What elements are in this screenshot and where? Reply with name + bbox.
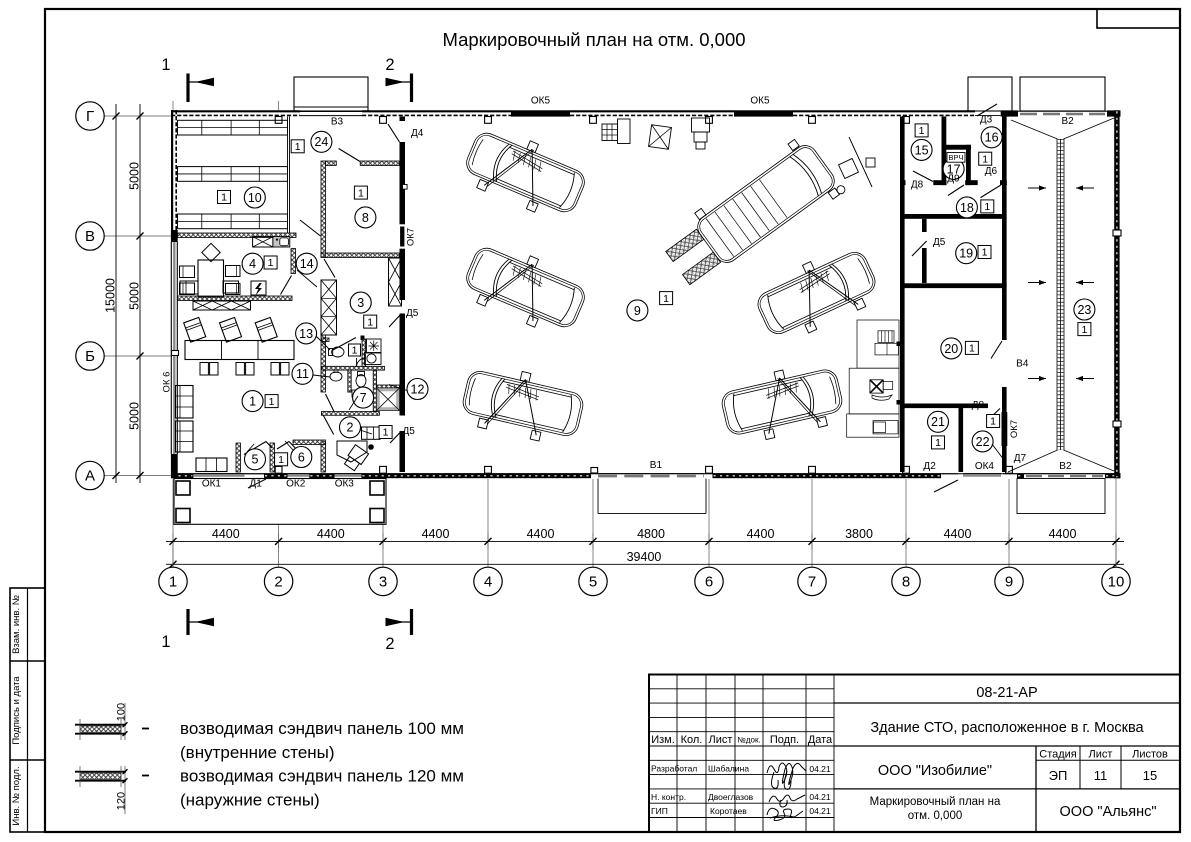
svg-text:100: 100: [116, 703, 128, 721]
svg-text:Г: Г: [86, 108, 94, 125]
svg-text:08-21-АР: 08-21-АР: [976, 685, 1037, 701]
svg-text:ВРЧ: ВРЧ: [948, 153, 963, 162]
svg-text:ОК2: ОК2: [286, 479, 306, 490]
svg-text:Д8: Д8: [911, 180, 924, 191]
svg-text:Д3: Д3: [980, 115, 993, 126]
svg-text:Д8: Д8: [972, 400, 985, 411]
svg-text:Подп.: Подп.: [770, 734, 799, 746]
svg-text:10: 10: [248, 191, 262, 205]
svg-text:5000: 5000: [128, 282, 142, 310]
svg-text:(наружние стены): (наружние стены): [180, 791, 320, 810]
svg-text:1: 1: [269, 396, 275, 408]
svg-text:ОК4: ОК4: [975, 461, 995, 472]
svg-text:2: 2: [385, 635, 394, 653]
svg-text:16: 16: [985, 131, 999, 145]
svg-text:Здание СТО, расположенное в г.: Здание СТО, расположенное в г. Москва: [870, 720, 1144, 736]
svg-text:В4: В4: [1016, 359, 1029, 370]
svg-text:1: 1: [278, 454, 284, 466]
svg-text:(внутренние стены): (внутренние стены): [180, 743, 335, 762]
svg-text:04.21: 04.21: [809, 792, 831, 802]
svg-text:1: 1: [221, 192, 227, 204]
svg-text:Д9: Д9: [947, 174, 960, 185]
svg-text:5: 5: [252, 453, 259, 467]
svg-text:Д4: Д4: [411, 128, 424, 139]
svg-text:9: 9: [634, 304, 641, 318]
svg-text:Д6: Д6: [985, 166, 998, 177]
svg-text:В1: В1: [650, 460, 663, 471]
svg-text:20: 20: [944, 342, 958, 356]
svg-text:Д5: Д5: [933, 237, 946, 248]
svg-text:Листов: Листов: [1132, 749, 1168, 761]
svg-text:1: 1: [249, 394, 256, 408]
svg-text:Разработал: Разработал: [651, 764, 697, 774]
svg-text:Н. контр.: Н. контр.: [651, 792, 686, 802]
svg-text:4: 4: [484, 574, 492, 591]
svg-text:4400: 4400: [317, 527, 345, 541]
svg-text:В: В: [85, 228, 95, 245]
svg-text:2: 2: [385, 56, 394, 74]
svg-text:ОК3: ОК3: [335, 479, 355, 490]
svg-text:ОК5: ОК5: [750, 96, 770, 107]
svg-text:3800: 3800: [845, 527, 873, 541]
svg-text:15: 15: [1143, 768, 1157, 783]
svg-text:1: 1: [367, 316, 373, 328]
svg-text:1: 1: [919, 125, 925, 137]
svg-text:Взам. инв. №: Взам. инв. №: [11, 595, 22, 654]
svg-text:3: 3: [379, 574, 387, 591]
svg-text:В2: В2: [1061, 116, 1074, 127]
svg-text:15: 15: [915, 143, 929, 157]
svg-text:1: 1: [969, 343, 975, 355]
svg-text:1: 1: [990, 416, 996, 428]
svg-text:4400: 4400: [1049, 527, 1077, 541]
svg-text:24: 24: [314, 135, 328, 149]
svg-text:Двоеглазов: Двоеглазов: [708, 792, 754, 802]
svg-text:ОК1: ОК1: [202, 479, 222, 490]
svg-text:18: 18: [960, 201, 974, 215]
svg-text:В2: В2: [1059, 461, 1072, 472]
svg-text:4400: 4400: [422, 527, 450, 541]
svg-text:10: 10: [1108, 574, 1125, 591]
svg-text:Инв. № подл.: Инв. № подл.: [11, 766, 22, 825]
svg-text:04.21: 04.21: [809, 806, 831, 816]
svg-text:ООО "Альянс": ООО "Альянс": [1060, 804, 1157, 820]
svg-text:4400: 4400: [747, 527, 775, 541]
svg-text:Изм.: Изм.: [651, 734, 675, 746]
svg-text:1: 1: [169, 574, 177, 591]
svg-text:4800: 4800: [637, 527, 665, 541]
svg-text:1: 1: [982, 153, 988, 165]
svg-text:1: 1: [984, 201, 990, 213]
svg-text:6: 6: [705, 574, 713, 591]
svg-text:возводимая сэндвич панель 100: возводимая сэндвич панель 100 мм: [180, 719, 464, 738]
svg-text:9: 9: [1005, 574, 1013, 591]
svg-text:ЭП: ЭП: [1049, 768, 1068, 783]
svg-text:Маркировочный план на: Маркировочный план на: [870, 796, 1001, 808]
svg-text:ОК 6: ОК 6: [162, 372, 173, 393]
svg-text:04.21: 04.21: [809, 764, 831, 774]
svg-text:ООО "Изобилие": ООО "Изобилие": [878, 763, 992, 779]
svg-text:1: 1: [161, 633, 170, 651]
svg-text:4400: 4400: [944, 527, 972, 541]
svg-text:22: 22: [976, 435, 990, 449]
svg-text:5: 5: [589, 574, 597, 591]
svg-text:5000: 5000: [128, 162, 142, 190]
svg-text:6: 6: [298, 450, 305, 464]
svg-text:120: 120: [116, 792, 128, 810]
svg-text:ОК5: ОК5: [531, 96, 551, 107]
svg-text:Стадия: Стадия: [1039, 749, 1077, 761]
svg-text:А: А: [85, 468, 95, 485]
svg-text:возводимая сэндвич панель 120: возводимая сэндвич панель 120 мм: [180, 767, 464, 786]
svg-text:Маркировочный план на отм. 0,0: Маркировочный план на отм. 0,000: [442, 29, 745, 50]
svg-text:Д5: Д5: [406, 308, 419, 319]
svg-text:Дата: Дата: [808, 734, 833, 746]
svg-text:4400: 4400: [527, 527, 555, 541]
svg-text:4400: 4400: [212, 527, 240, 541]
svg-text:1: 1: [663, 293, 669, 305]
svg-text:8: 8: [362, 211, 369, 225]
svg-text:2: 2: [274, 574, 282, 591]
svg-text:ОК7: ОК7: [1009, 420, 1020, 438]
svg-text:1: 1: [268, 257, 274, 269]
svg-text:Кол.: Кол.: [681, 734, 703, 746]
svg-text:7: 7: [808, 574, 816, 591]
svg-text:В3: В3: [331, 117, 344, 128]
svg-text:1: 1: [935, 437, 941, 449]
svg-text:1: 1: [982, 247, 988, 259]
svg-text:Подпись и дата: Подпись и дата: [11, 676, 22, 745]
svg-text:13: 13: [299, 327, 313, 341]
svg-text:Лист: Лист: [1089, 749, 1113, 761]
svg-text:21: 21: [931, 415, 945, 429]
svg-text:1: 1: [383, 427, 389, 439]
svg-text:11: 11: [1094, 768, 1108, 783]
svg-text:Шабалина: Шабалина: [708, 764, 749, 774]
svg-text:Коротаев: Коротаев: [710, 806, 747, 816]
svg-text:23: 23: [1077, 303, 1091, 317]
svg-text:Лист: Лист: [709, 734, 733, 746]
svg-text:Д7: Д7: [1014, 453, 1027, 464]
svg-text:14: 14: [300, 257, 314, 271]
svg-text:1: 1: [1081, 324, 1087, 336]
svg-text:15000: 15000: [104, 278, 118, 313]
svg-text:19: 19: [959, 247, 973, 261]
svg-text:Б: Б: [85, 348, 95, 365]
svg-text:Д2: Д2: [923, 461, 936, 472]
svg-text:отм. 0,000: отм. 0,000: [908, 810, 963, 822]
svg-text:5000: 5000: [128, 402, 142, 430]
svg-text:4: 4: [249, 257, 256, 271]
svg-text:2: 2: [347, 421, 354, 435]
svg-text:№док.: №док.: [737, 736, 760, 745]
svg-text:8: 8: [902, 574, 910, 591]
svg-text:Д5: Д5: [403, 426, 416, 437]
svg-text:12: 12: [411, 382, 425, 396]
svg-text:7: 7: [360, 391, 367, 405]
svg-text:1: 1: [295, 141, 301, 153]
svg-text:11: 11: [296, 367, 309, 381]
svg-text:1: 1: [352, 345, 358, 357]
svg-text:ГИП: ГИП: [651, 806, 668, 816]
svg-text:3: 3: [357, 296, 364, 310]
svg-text:39400: 39400: [627, 550, 662, 564]
svg-text:1: 1: [358, 187, 364, 199]
svg-text:ОК7: ОК7: [406, 228, 417, 246]
svg-text:1: 1: [161, 56, 170, 74]
